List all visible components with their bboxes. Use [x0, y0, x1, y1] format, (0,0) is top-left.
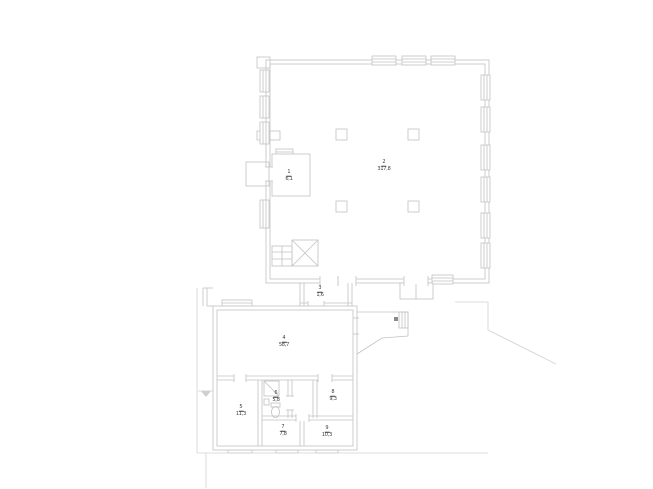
room-label-5: 5 11,3 [236, 405, 246, 418]
room-label-3: 3 1,6 [316, 286, 323, 299]
window-symbol [399, 312, 408, 328]
window-symbol [481, 177, 490, 202]
window-symbol [260, 96, 269, 118]
window-symbol [260, 122, 269, 144]
room-label-9: 9 10,3 [322, 426, 332, 439]
room-label-6: 6 5,8 [272, 391, 279, 404]
window-symbol [481, 243, 490, 268]
elevator-shaft [292, 240, 318, 266]
gate-mark [201, 391, 211, 397]
window-symbol [481, 213, 490, 238]
floor-plan-canvas: 1 6,1 2 317,8 3 1,6 4 58,7 5 11,3 6 5,8 … [0, 0, 653, 489]
room-label-8: 8 9,3 [329, 390, 336, 403]
entry-room-1 [246, 154, 310, 196]
unit-entry [203, 288, 213, 306]
door-mark [394, 317, 398, 321]
room-label-2: 2 317,8 [377, 160, 390, 173]
window-symbol [402, 56, 426, 65]
room-label-7: 7 7,8 [279, 425, 286, 438]
closet-shelves [272, 246, 292, 266]
window-symbol [432, 275, 453, 284]
window-symbol [481, 107, 490, 132]
window-symbol [260, 200, 269, 228]
rear-porch [400, 276, 433, 299]
room-label-4: 4 58,7 [279, 336, 289, 349]
floor-plan-drawing [0, 0, 653, 489]
window-symbol [372, 56, 396, 65]
window-symbol [481, 145, 490, 170]
window-symbol [260, 70, 269, 92]
window-symbol [431, 56, 455, 65]
window-symbol [481, 75, 490, 100]
room-label-1: 1 6,1 [285, 170, 292, 183]
